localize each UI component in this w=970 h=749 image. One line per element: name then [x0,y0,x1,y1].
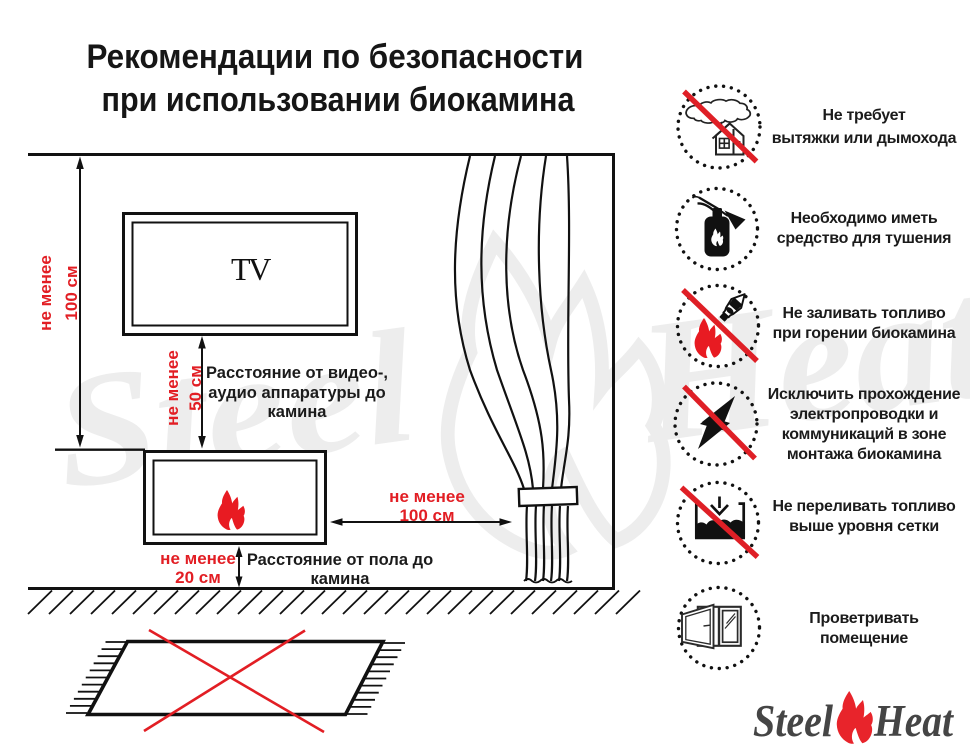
svg-text:не менее: не менее [163,350,182,426]
svg-text:Расстояние от пола до: Расстояние от пола до [247,551,433,569]
svg-text:Расстояние от видео-,: Расстояние от видео-, [206,364,388,382]
svg-text:средство для тушения: средство для тушения [777,230,951,247]
svg-text:Heat: Heat [873,696,954,746]
svg-text:вытяжки или дымохода: вытяжки или дымохода [772,130,957,147]
svg-text:Рекомендации по безопасности: Рекомендации по безопасности [87,38,584,76]
svg-text:Необходимо иметь: Необходимо иметь [791,210,938,227]
svg-text:коммуникаций в зоне: коммуникаций в зоне [782,426,947,443]
svg-text:камина: камина [268,403,328,421]
svg-text:помещение: помещение [820,630,908,647]
svg-text:50 см: 50 см [186,365,205,411]
svg-text:выше уровня сетки: выше уровня сетки [789,518,939,535]
svg-text:Не заливать топливо: Не заливать топливо [783,305,946,322]
svg-text:аудио аппаратуры до: аудио аппаратуры до [208,384,386,402]
svg-text:при использовании биокамина: при использовании биокамина [102,81,576,119]
svg-text:TV: TV [231,251,271,287]
svg-text:Проветривать: Проветривать [809,610,919,627]
svg-text:Не переливать топливо: Не переливать топливо [773,498,956,515]
svg-text:Heat: Heat [625,238,970,480]
svg-text:при горении биокамина: при горении биокамина [773,325,956,342]
svg-text:Steel: Steel [753,696,833,746]
svg-text:монтажа биокамина: монтажа биокамина [787,446,942,463]
svg-text:не менее: не менее [389,487,465,506]
svg-text:не менее: не менее [160,549,236,568]
svg-text:100 см: 100 см [62,265,81,320]
svg-text:не менее: не менее [36,255,55,331]
svg-text:камина: камина [311,570,371,588]
svg-text:20 см: 20 см [175,568,221,587]
svg-text:электропроводки и: электропроводки и [790,406,938,423]
svg-text:Не требует: Не требует [822,107,906,124]
svg-text:Исключить прохождение: Исключить прохождение [768,386,961,403]
